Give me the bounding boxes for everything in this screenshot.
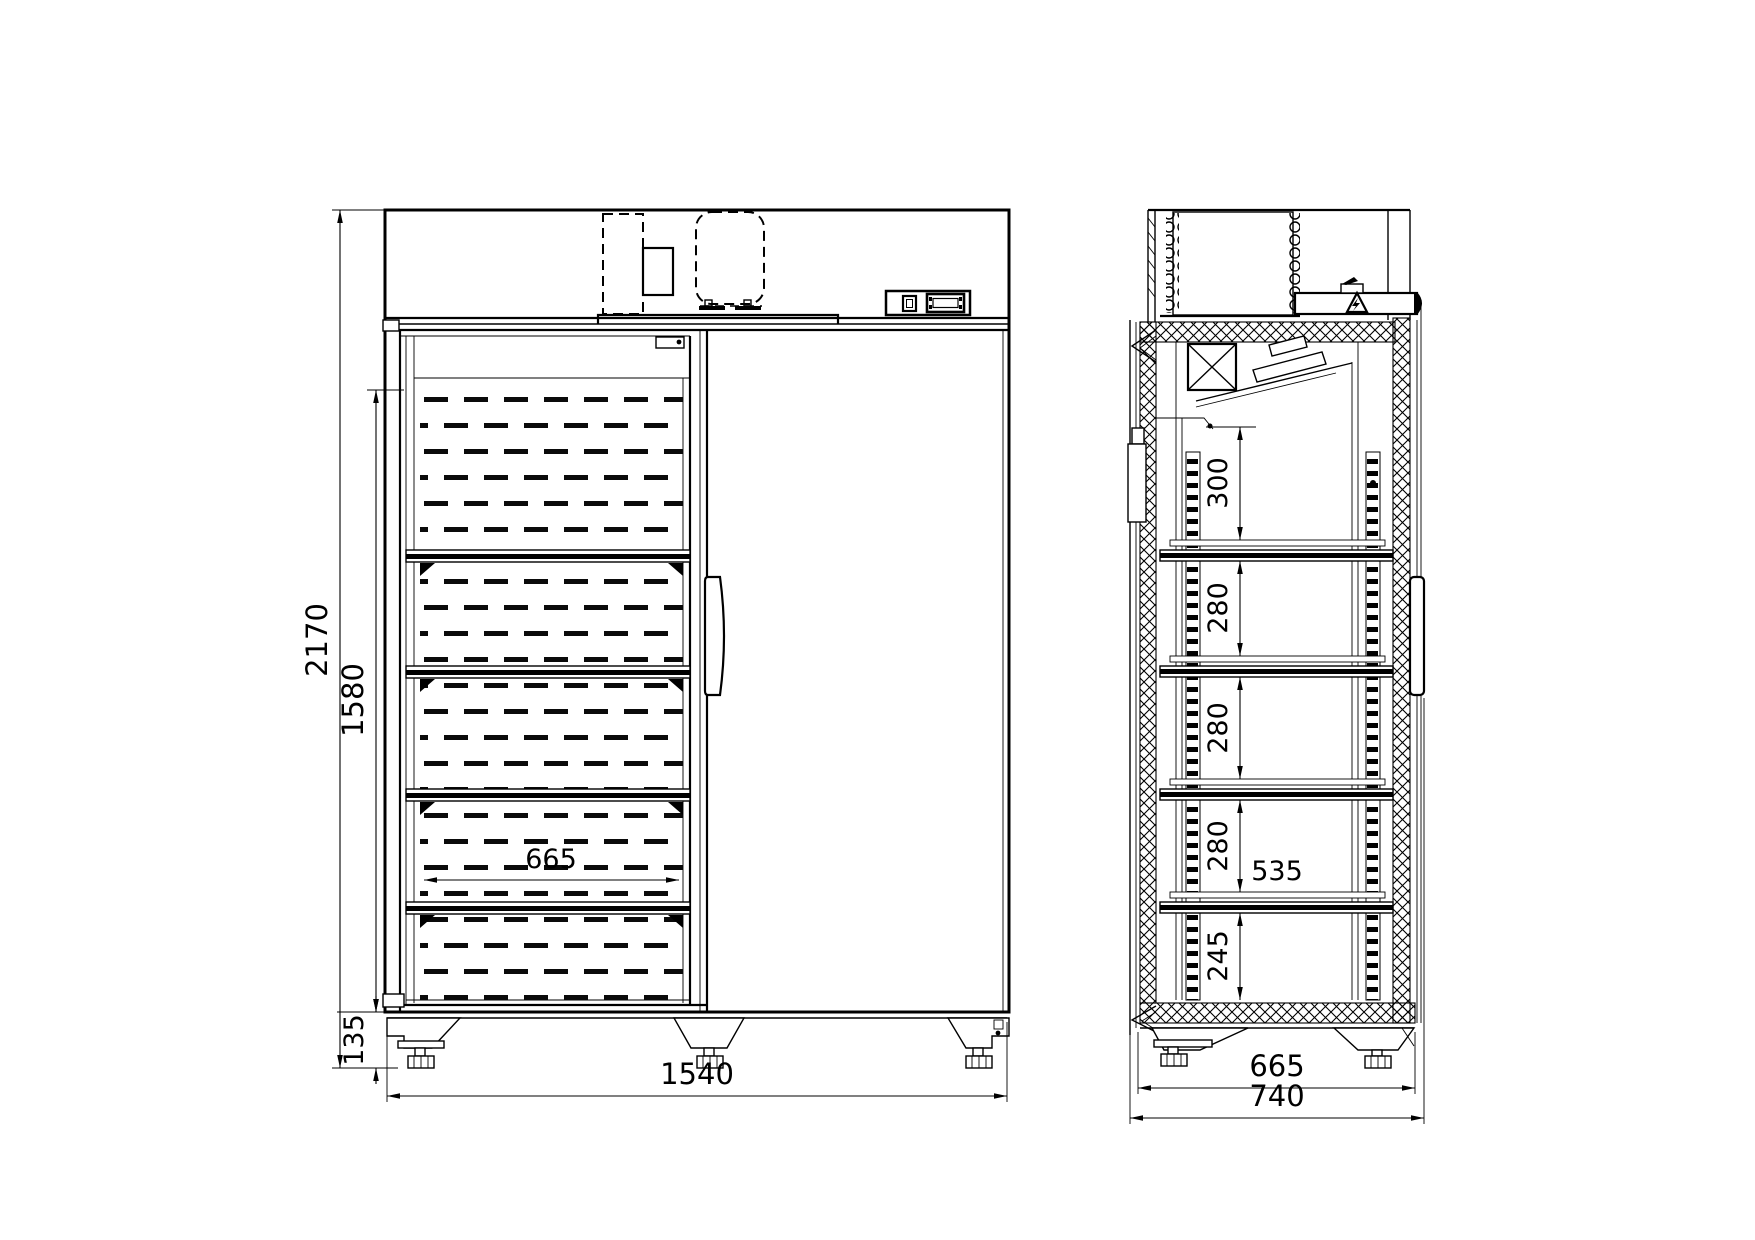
perforated-panel-3 [420, 678, 683, 789]
svg-text:300: 300 [1203, 457, 1234, 509]
power-switch[interactable] [903, 296, 916, 311]
front-foot-right [948, 1018, 1009, 1068]
trim-bar-bracket [1341, 284, 1363, 293]
air-duct-bottom [1156, 418, 1213, 429]
shelf-3[interactable] [406, 789, 690, 801]
svg-text:245: 245 [1203, 930, 1234, 982]
side-foot-front [1334, 1028, 1414, 1068]
side-view: 535 300 280 280 280 245 [1128, 210, 1424, 1124]
front-view: 665 [300, 210, 1009, 1102]
shelf-1[interactable] [406, 550, 690, 562]
condenser-motor [643, 248, 673, 295]
svg-text:740: 740 [1249, 1079, 1304, 1113]
svg-text:280: 280 [1203, 820, 1234, 872]
shelf-rail-right [1366, 452, 1380, 1000]
dim-bottom-shelf-gap: 245 [1203, 913, 1240, 1000]
dim-shelf-gap-3: 280 [1203, 677, 1240, 779]
control-panel [886, 291, 970, 315]
top-wall-insulation [1140, 322, 1395, 342]
svg-text:280: 280 [1203, 702, 1234, 754]
dim-door-opening-height-label: 1580 [336, 663, 370, 737]
dim-overall-height: 2170 [300, 210, 340, 1068]
side-machine-compartment [1148, 210, 1422, 322]
door-hinge-top [383, 320, 399, 331]
dim-base-height: 135 [339, 996, 376, 1084]
condenser-coil-block [1173, 212, 1293, 315]
door-handle[interactable] [705, 577, 724, 695]
dim-overall-width-label: 1540 [660, 1057, 734, 1091]
svg-text:665: 665 [1249, 1049, 1304, 1083]
refrigerated-cabinet-drawing: 665 [0, 0, 1755, 1240]
side-shelf-1[interactable] [1160, 540, 1393, 561]
dim-shelf-gap-2: 280 [1203, 561, 1240, 656]
shelf-2[interactable] [406, 666, 690, 678]
side-shelf-gap-dimensions: 300 280 280 280 245 [1203, 427, 1256, 1000]
dim-overall-height-label: 2170 [300, 603, 334, 677]
side-shelf-4[interactable] [1160, 892, 1393, 913]
perforated-panel-2 [420, 562, 683, 666]
technical-drawing-page: 665 [0, 0, 1755, 1240]
side-door [1410, 303, 1424, 1023]
dim-shelf-depth-label: 535 [1251, 856, 1303, 887]
shelf-4[interactable] [406, 902, 690, 914]
back-wall-insulation [1140, 322, 1156, 1003]
svg-text:280: 280 [1203, 582, 1234, 634]
back-edge-ticks [1148, 218, 1155, 297]
door-hinge-bottom [383, 994, 404, 1007]
dim-door-opening-height: 1580 [336, 390, 376, 1012]
junction-box [1128, 444, 1146, 522]
side-shelf-3[interactable] [1160, 779, 1393, 800]
dim-top-shelf-gap: 300 [1203, 427, 1240, 540]
side-interior: 535 [1156, 336, 1393, 1000]
dim-shelf-width-label: 665 [525, 844, 577, 875]
dim-shelf-gap-4: 280 [1203, 800, 1240, 892]
side-door-handle[interactable] [1410, 577, 1424, 695]
perforated-panel-1 [420, 378, 683, 550]
side-shelf-2[interactable] [1160, 656, 1393, 677]
bottom-wall-insulation [1140, 1003, 1415, 1023]
dim-base-height-label: 135 [339, 1014, 370, 1066]
shelf-rail-left [1186, 452, 1200, 1000]
side-foot-back [1152, 1028, 1248, 1066]
evaporator-tray [1253, 352, 1326, 382]
door-insulation [1393, 318, 1410, 1023]
perforated-panel-5 [420, 914, 683, 1000]
front-foot-left [387, 1018, 460, 1068]
cable-gland [1132, 428, 1144, 444]
condenser-coil-left [1166, 213, 1179, 313]
